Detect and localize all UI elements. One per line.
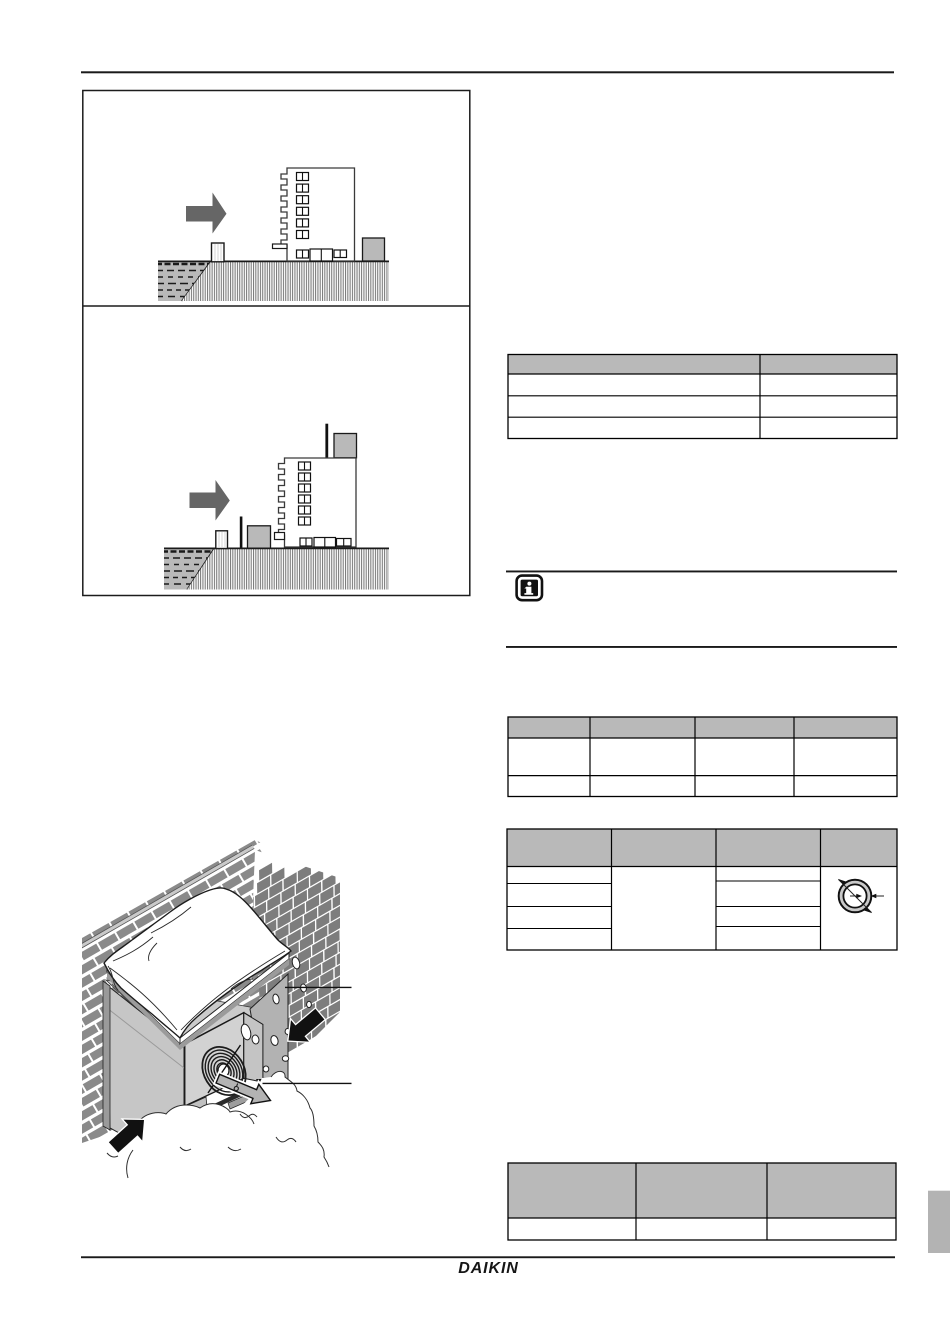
svg-text:DAIKIN: DAIKIN bbox=[458, 1260, 519, 1277]
